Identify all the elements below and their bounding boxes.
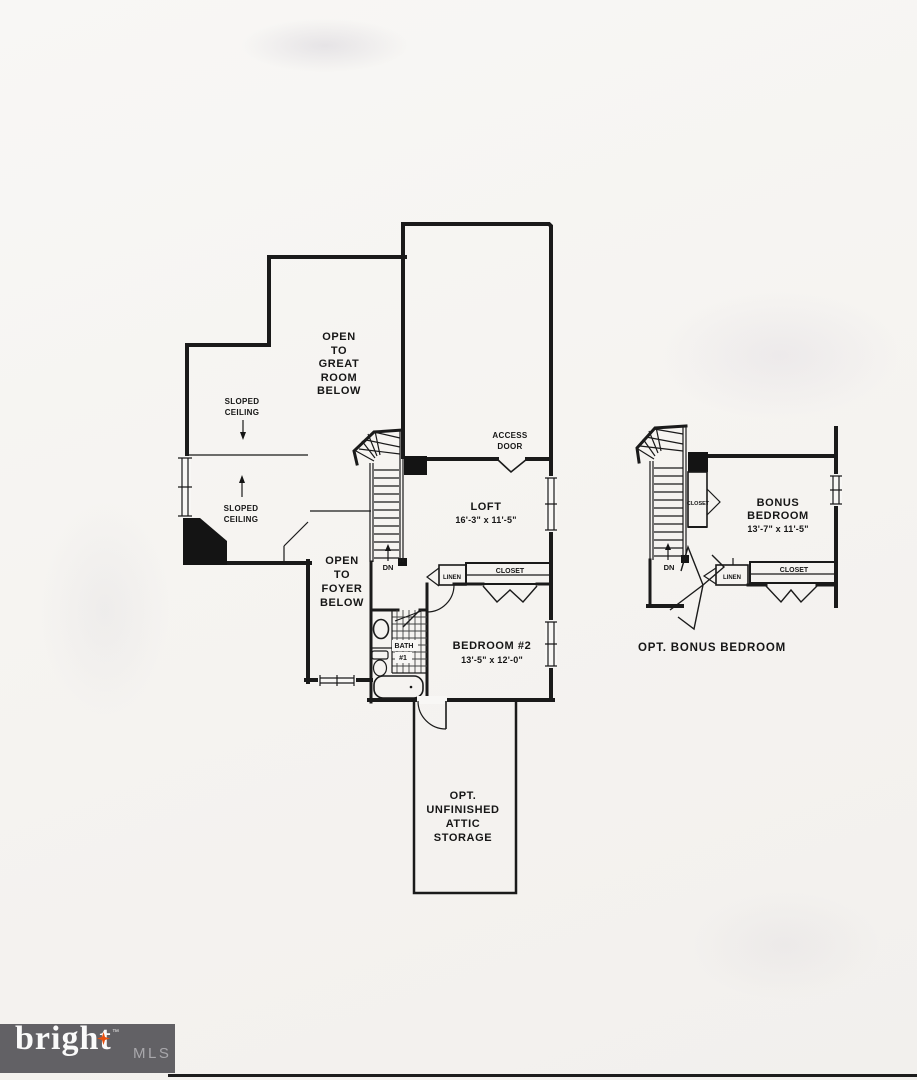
bonus-window-right-wall — [830, 474, 842, 506]
bonus-bedroom-label: BONUS — [757, 497, 800, 509]
bedroom2-door — [427, 585, 454, 612]
loft-dimensions: 16'-3" x 11'-5" — [455, 515, 516, 525]
bedroom2-label: BEDROOM #2 — [453, 640, 532, 652]
open-great-room-label: OPEN — [322, 331, 356, 343]
floor-plan-drawing: OPEN TO GREAT ROOM BELOW SLOPED CEILING … — [0, 0, 917, 1080]
stairs-down-label: DN — [383, 563, 394, 572]
toilet-fixture — [372, 651, 388, 676]
bonus-linen-label: LINEN — [723, 575, 741, 581]
logo-trademark: ™ — [112, 1029, 119, 1036]
linen-label: LINEN — [443, 575, 461, 581]
bedroom2-dimensions: 13'-5" x 12'-0" — [461, 655, 523, 665]
bath-label: BATH — [395, 643, 414, 650]
open-foyer-label: OPEN — [325, 555, 359, 567]
sloped-ceiling-label: CEILING — [224, 515, 259, 524]
access-door-symbol — [497, 459, 527, 472]
sloped-ceiling-label: SLOPED — [224, 504, 259, 513]
sloped-ceiling-label: CEILING — [225, 408, 260, 417]
access-door-label: DOOR — [497, 442, 522, 451]
window-foyer-bottom-wall — [318, 675, 356, 686]
sink-fixture — [371, 620, 392, 649]
bonus-solid-wall-fills — [681, 452, 708, 563]
bonus-entry-double-door — [670, 547, 724, 629]
open-foyer-label: BELOW — [320, 597, 364, 609]
open-great-room-label: BELOW — [317, 385, 361, 397]
window-loft-right-wall — [545, 476, 557, 532]
sloped-ceiling-arrow-down — [240, 420, 246, 440]
open-great-room-label: GREAT — [319, 358, 360, 370]
open-foyer-label: FOYER — [322, 583, 363, 595]
bonus-plan-caption: OPT. BONUS BEDROOM — [638, 642, 786, 654]
open-foyer-label: TO — [334, 569, 350, 581]
bonus-bedroom-label: BEDROOM — [747, 510, 809, 522]
main-linen-closet — [427, 563, 551, 602]
bath-label: #1 — [399, 655, 407, 662]
attic-storage-label: UNFINISHED — [426, 804, 499, 816]
footer-divider-line — [168, 1074, 917, 1077]
sloped-ceiling-arrow-up — [239, 475, 245, 497]
window-left-wall — [178, 456, 192, 518]
attic-storage-label: OPT. — [450, 790, 477, 802]
bonus-staircase — [637, 426, 686, 560]
bright-mls-logo: bright ™ MLS — [0, 1024, 175, 1073]
bonus-plan-labels: BONUS BEDROOM 13'-7" x 11'-5" CLOSET LIN… — [638, 497, 809, 654]
bonus-rear-closet-label: CLOSET — [780, 567, 809, 574]
logo-star-icon — [97, 1032, 110, 1045]
bathroom — [371, 610, 427, 698]
attic-storage-label: STORAGE — [434, 832, 492, 844]
bathtub-fixture — [374, 676, 423, 698]
access-door-label: ACCESS — [492, 431, 528, 440]
loft-label: LOFT — [470, 501, 501, 513]
main-staircase — [354, 430, 403, 562]
bonus-closet-label: CLOSET — [687, 501, 710, 507]
bonus-side-closet — [688, 472, 720, 527]
attic-storage-label: ATTIC — [446, 818, 481, 830]
logo-mls-text: MLS — [133, 1045, 171, 1062]
scanned-floor-plan-page: OPEN TO GREAT ROOM BELOW SLOPED CEILING … — [0, 0, 917, 1080]
main-plan-walls — [185, 224, 553, 702]
window-bedroom-right-wall — [545, 620, 557, 668]
sloped-ceiling-label: SLOPED — [225, 397, 260, 406]
bonus-stairs-down-label: DN — [664, 563, 675, 572]
closet-label: CLOSET — [496, 568, 525, 575]
open-great-room-label: ROOM — [321, 372, 358, 384]
bonus-bedroom-dimensions: 13'-7" x 11'-5" — [747, 524, 808, 534]
open-great-room-label: TO — [331, 345, 347, 357]
